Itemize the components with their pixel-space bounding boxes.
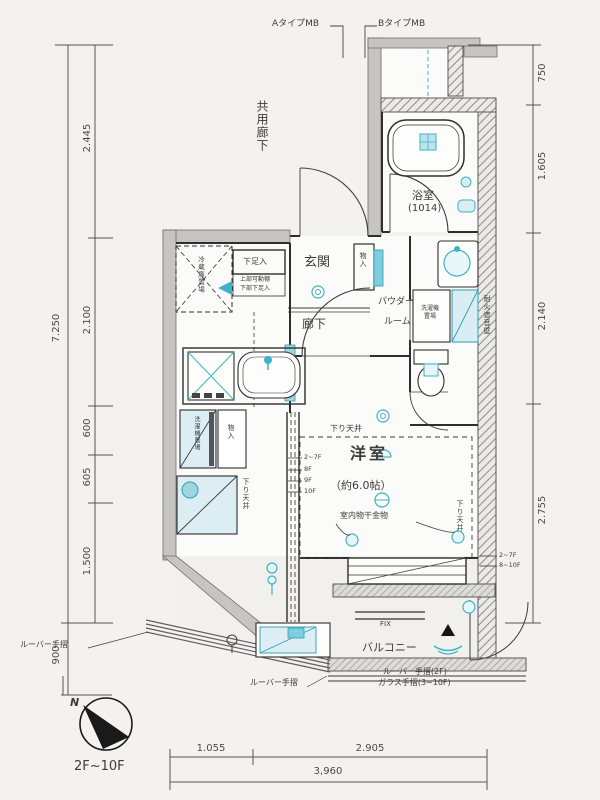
dim-bottom-total: 3,960 <box>306 767 350 777</box>
floor-mark-left-2: 9F <box>304 477 312 484</box>
dim-right-1: 1.605 <box>538 144 548 188</box>
dim-left-1: 2.100 <box>83 298 93 342</box>
floor-mark-right-0: 2~7F <box>499 552 516 559</box>
label-powder-1: パウダー <box>378 298 414 307</box>
dim-left-total: 7.250 <box>52 306 62 350</box>
label-louver-rail-2: ルーバー手摺 <box>250 679 298 687</box>
floor-mark-left-0: 2~7F <box>304 454 321 461</box>
dim-bottom-1: 2.905 <box>348 744 392 754</box>
label-storage-entrance: 物入 <box>359 252 366 268</box>
label-common-corridor: 共用廊下 <box>256 100 268 152</box>
label-type-a-mb: AタイプMB <box>272 20 319 29</box>
dim-left-bottom: 900 <box>52 633 62 677</box>
dim-left-4: 1.500 <box>83 539 93 583</box>
floor-mark-left-3: 10F <box>304 488 316 495</box>
label-dropped-ceiling-right: 下り天井 <box>456 500 463 532</box>
label-powder-2: ルーム <box>384 318 411 327</box>
label-balcony: バルコニー <box>362 642 417 653</box>
dim-right-3: 2.755 <box>538 488 548 532</box>
label-indoor-drying: 室内物干金物 <box>340 512 388 520</box>
dim-left-0: 2.445 <box>83 116 93 160</box>
label-fix-window: FIX <box>380 621 391 628</box>
label-shoe-cabinet: 下足入 <box>243 258 267 266</box>
label-hallway: 廊下 <box>302 318 326 330</box>
dim-bottom-0: 1.055 <box>189 744 233 754</box>
compass <box>80 698 132 750</box>
label-storage: 物入 <box>227 424 234 440</box>
floor-mark-left-1: 8F <box>304 466 312 473</box>
label-fire-wall: 耐火遮音壁 <box>483 295 490 335</box>
dim-right-2: 2.140 <box>538 294 548 338</box>
label-shoe-note-1: 上部可動棚 <box>240 277 270 283</box>
compass-north-label: N <box>70 697 79 708</box>
compass-floor-range: 2F~10F <box>74 760 125 773</box>
floor-mark-right-1: 8~10F <box>499 562 521 569</box>
label-dropped-ceiling-kitchen: 下り天井 <box>242 478 249 510</box>
label-entrance: 玄関 <box>304 256 330 269</box>
label-type-b-mb: BタイプMB <box>378 20 425 29</box>
label-western-room-size: （約6.0帖） <box>330 480 392 491</box>
label-western-room: 洋室 <box>350 446 388 462</box>
dim-left-2: 600 <box>83 406 93 450</box>
dim-right-0: 750 <box>538 51 548 95</box>
label-washer-1: 洗濯機 <box>421 306 439 312</box>
label-shoe-note-2: 下部下足入 <box>240 286 270 292</box>
label-washer-2: 置場 <box>424 314 436 320</box>
label-refrigerator: 冷蔵庫置場 <box>197 256 204 294</box>
label-bathroom-size: (1014) <box>408 204 441 214</box>
label-washing-machine: 洗濯機置場 <box>193 416 199 451</box>
label-bathroom: 浴室 <box>412 190 434 201</box>
dim-left-3: 605 <box>83 455 93 499</box>
label-rail-note-2: ガラス手摺(3~10F) <box>378 679 451 687</box>
floorplan-page: AタイプMB BタイプMB 共用廊下 浴室 (1014) 玄関 下足入 上部可動… <box>0 0 600 800</box>
label-dropped-ceiling-top: 下り天井 <box>330 425 362 433</box>
north-arrow-icon <box>83 705 129 749</box>
label-rail-note-1: ルーバー手摺(2F) <box>383 668 447 676</box>
